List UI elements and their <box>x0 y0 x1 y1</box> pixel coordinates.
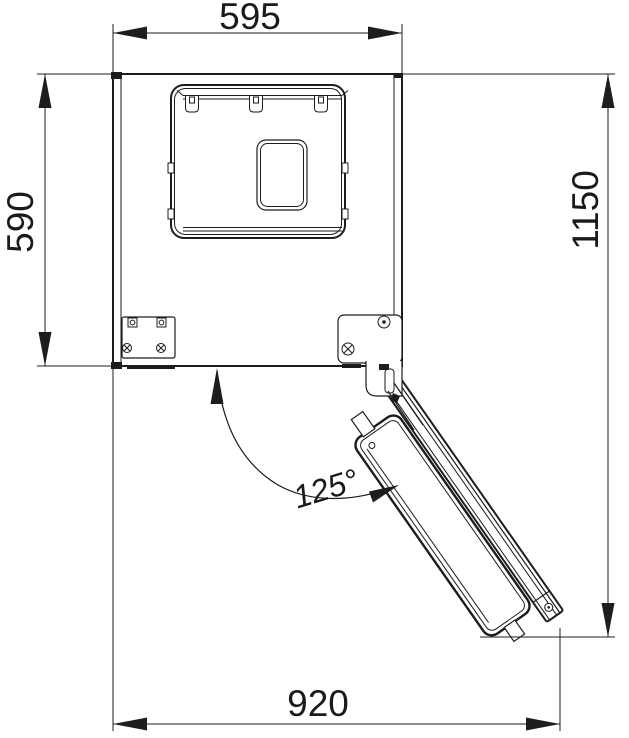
technical-drawing-canvas: 595 590 1150 920 125° <box>0 0 629 738</box>
left-hinge-plate <box>122 317 175 358</box>
arrowhead-angle-top <box>211 368 224 404</box>
arrowhead-1150-bottom <box>602 603 615 637</box>
arrowhead-595-left <box>113 27 147 40</box>
dim-label-920: 920 <box>287 683 349 724</box>
cover-notch-right-upper <box>342 163 348 173</box>
top-cover <box>168 85 348 238</box>
arrowhead-920-left <box>113 718 147 731</box>
door-open-group <box>336 376 563 654</box>
hinge-knuckle-block <box>379 364 389 370</box>
cover-tab-right <box>315 96 328 112</box>
dimension-drawing-svg: 595 590 1150 920 125° <box>0 0 629 738</box>
cover-vent-recess <box>257 140 307 210</box>
cover-notch-left-lower <box>168 209 174 219</box>
cover-tab-left <box>186 96 199 112</box>
gasket-mark-bottom-left <box>127 365 175 369</box>
arrowhead-590-top <box>39 74 52 108</box>
gasket-mark-bottom-right <box>342 364 361 368</box>
dimension-top-width: 595 <box>113 0 402 74</box>
dim-label-1150: 1150 <box>565 170 606 250</box>
arrowhead-590-bottom <box>39 332 52 366</box>
dim-label-angle: 125° <box>289 462 363 516</box>
left-hinge-screw-4 <box>157 344 166 353</box>
cover-notch-right-lower <box>342 209 348 219</box>
right-hinge-screw-top <box>378 316 390 328</box>
right-hinge-screw-left <box>342 343 354 355</box>
arrowhead-1150-top <box>602 74 615 108</box>
left-hinge-screw-3 <box>123 344 132 353</box>
right-hinge-plate-outline <box>338 315 402 363</box>
cover-tab-center <box>250 96 263 112</box>
cover-notch-left-upper <box>168 163 174 173</box>
dimension-left-depth: 590 <box>0 74 113 366</box>
corner-mark-top-right <box>394 73 402 78</box>
arrowhead-920-right <box>526 718 560 731</box>
dim-label-590: 590 <box>0 191 41 253</box>
arrowhead-595-right <box>368 27 402 40</box>
dim-label-595: 595 <box>219 0 281 37</box>
